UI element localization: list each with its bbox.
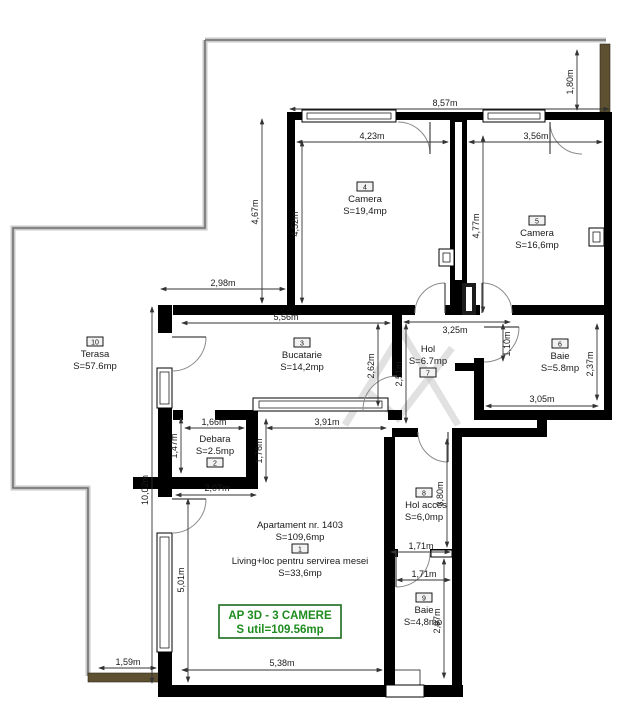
- room-bucatarie-label: 3 Bucatarie S=14,2mp: [280, 338, 324, 373]
- radiator-shaft: [439, 249, 454, 266]
- title-box: AP 3D - 3 CAMERE S util=109.56mp: [219, 605, 341, 638]
- window-camera4: [302, 110, 396, 122]
- apartment-area: S=109,6mp: [276, 532, 325, 543]
- room6-name: Baie: [550, 351, 569, 362]
- dim-debara-bottom-width: 2,07m: [204, 483, 229, 493]
- room2-area: S=2.5mp: [196, 446, 234, 457]
- dim-debara-height: 1,47m: [169, 433, 179, 458]
- dim-top-width: 8,57m: [432, 98, 457, 108]
- room4-name: Camera: [348, 194, 383, 205]
- doors: [172, 122, 582, 587]
- door-camera4-terrace: [398, 122, 430, 154]
- apartment-header: Apartament nr. 1403: [257, 520, 343, 531]
- radiator-camera5: [589, 228, 604, 246]
- room3-name: Bucatarie: [282, 350, 322, 361]
- dim-kitchen-opening: 3,91m: [314, 417, 339, 427]
- dim-debara-width: 1,66m: [201, 417, 226, 427]
- room10-area: S=57.6mp: [73, 361, 117, 372]
- room4-area: S=19,4mp: [343, 206, 387, 217]
- room4-number: 4: [363, 185, 367, 192]
- shelf-holacces: [431, 550, 452, 557]
- room6-area: S=5.8mp: [541, 363, 579, 374]
- room7-name: Hol: [421, 344, 435, 355]
- room-camera5-label: 5 Camera S=16,6mp: [515, 216, 559, 251]
- room-camera4-label: 4 Camera S=19,4mp: [343, 182, 387, 217]
- room2-name: Debara: [199, 434, 231, 445]
- room1-name: Living+loc pentru servirea mesei: [232, 556, 369, 567]
- dim-baie6-width: 3,05m: [529, 394, 554, 404]
- room5-number: 5: [535, 219, 539, 226]
- room8-number: 8: [422, 491, 426, 498]
- room10-name: Terasa: [81, 349, 110, 360]
- door-camera4-hol: [415, 283, 445, 313]
- dim-hol-height: 2,51m: [394, 361, 404, 386]
- window-camera5: [483, 110, 545, 122]
- room1-area: S=33,6mp: [278, 568, 322, 579]
- room9-name: Baie: [414, 605, 433, 616]
- dim-baie6-height: 2,37m: [585, 351, 595, 376]
- parapet-wood-top-right: [600, 44, 610, 112]
- room5-name: Camera: [520, 228, 555, 239]
- room-living-label: Apartament nr. 1403 S=109,6mp 1 Living+l…: [232, 520, 369, 579]
- room9-number: 9: [422, 596, 426, 603]
- dim-holacces-width: 1,71m: [408, 541, 433, 551]
- room3-area: S=14,2mp: [280, 362, 324, 373]
- door-camera5-hol: [482, 283, 512, 313]
- room10-number: 10: [91, 340, 99, 347]
- door-living-terrace: [172, 499, 206, 533]
- dim-kitchen-height: 2,62m: [366, 353, 376, 378]
- dim-terrace-bottom-width: 1,59m: [115, 657, 140, 667]
- floorplan-canvas: 8,57m 1,80m 4,23m 3,56m 4,67m 4,52m 4,77…: [0, 0, 635, 720]
- room-debara-label: Debara S=2.5mp 2: [196, 434, 234, 468]
- window-living: [157, 533, 172, 652]
- room2-number: 2: [213, 461, 217, 468]
- dimension-labels: 8,57m 1,80m 4,23m 3,56m 4,67m 4,52m 4,77…: [115, 69, 595, 668]
- dim-kitchen-width: 5,56m: [273, 312, 298, 322]
- dim-camera4-height: 4,52m: [290, 211, 300, 236]
- parapet-wood-bottom-left: [88, 673, 160, 682]
- door-holacces: [418, 432, 448, 462]
- dim-living-left-height: 5,01m: [176, 567, 186, 592]
- title-box-line2: S util=109.56mp: [236, 624, 323, 636]
- dim-baie9-width: 1,71m: [411, 569, 436, 579]
- kitchen-counter-hatch: [253, 398, 388, 411]
- room8-name: Hol acces: [405, 500, 447, 511]
- title-box-line1: AP 3D - 3 CAMERE: [228, 610, 332, 622]
- dim-kitchen-offset: 2,98m: [210, 278, 235, 288]
- dim-terrace-top-height: 1,80m: [565, 69, 575, 94]
- room-baie6-label: 6 Baie S=5.8mp: [541, 339, 579, 374]
- door-leaf-shaft: [462, 283, 476, 315]
- window-kitchen: [157, 368, 172, 408]
- floorplan-drawing: 8,57m 1,80m 4,23m 3,56m 4,67m 4,52m 4,77…: [0, 0, 635, 720]
- room1-number: 1: [298, 547, 302, 554]
- dim-hol-width: 3,25m: [442, 325, 467, 335]
- dim-camera4-width: 4,23m: [359, 131, 384, 141]
- room7-number: 7: [426, 371, 430, 378]
- dim-left-total-height: 10,02m: [140, 475, 150, 505]
- room9-area: S=4,8mp: [404, 617, 442, 628]
- room8-area: S=6,0mp: [405, 512, 443, 523]
- room-terasa-label: 10 Terasa S=57.6mp: [73, 337, 117, 372]
- room5-area: S=16,6mp: [515, 240, 559, 251]
- dim-camera5-height: 4,77m: [471, 213, 481, 238]
- dim-camera5-width: 3,56m: [523, 131, 548, 141]
- door-camera5-terrace: [550, 122, 582, 154]
- door-kitchen-terrace: [172, 337, 206, 371]
- room6-number: 6: [558, 342, 562, 349]
- dim-debara-wall-height: 1,76m: [254, 438, 264, 463]
- dim-living-width: 5,38m: [269, 658, 294, 668]
- room3-number: 3: [300, 341, 304, 348]
- dim-terrace-left-height: 4,67m: [250, 199, 260, 224]
- room7-area: S=6.7mp: [409, 356, 447, 367]
- dim-baie6-door-offset: 1,10m: [502, 331, 512, 356]
